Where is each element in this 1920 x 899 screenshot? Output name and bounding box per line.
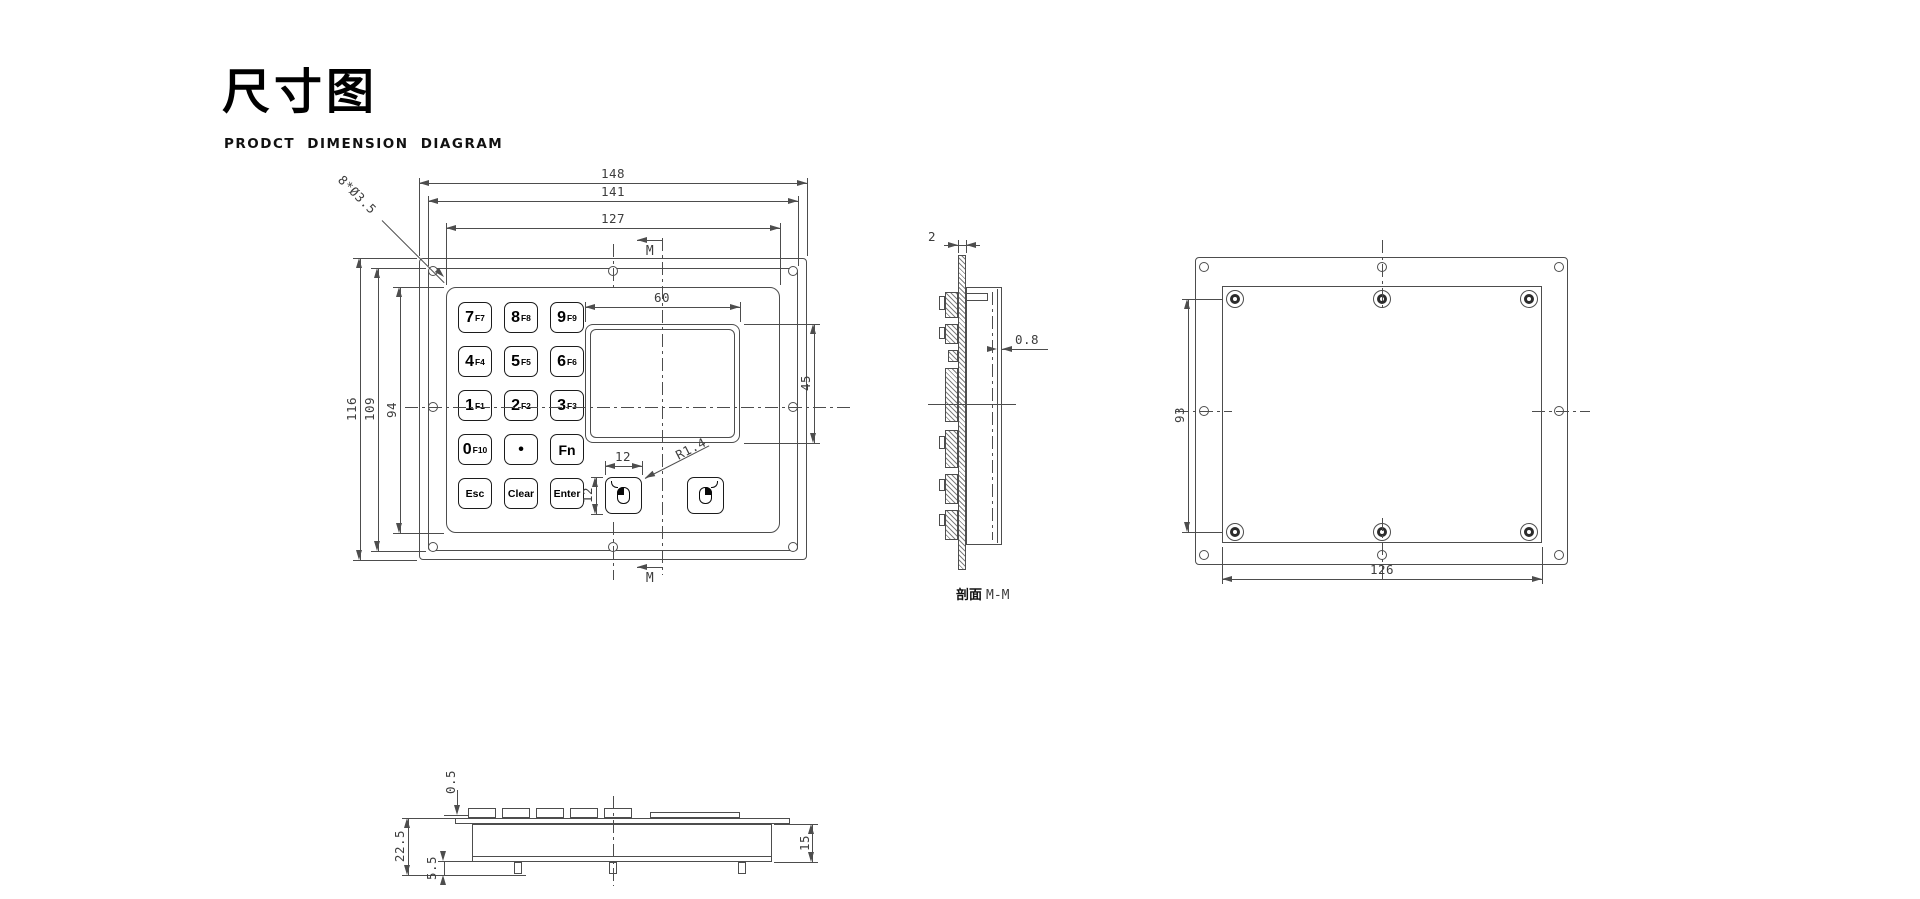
dim-line — [1188, 299, 1189, 532]
leader-line — [457, 790, 458, 806]
ext-line — [419, 178, 420, 256]
key-fn: Fn — [550, 434, 584, 465]
key-3-f3: 3F3 — [550, 390, 584, 421]
bottom-inner-line — [472, 856, 772, 857]
dim-label-overall-depth: 22.5 — [393, 824, 407, 868]
key-7-f7: 7F7 — [458, 302, 492, 333]
key-8-f8: 8F8 — [504, 302, 538, 333]
section-keycap — [939, 296, 945, 310]
centerline — [928, 404, 1016, 405]
ext-line — [393, 533, 444, 534]
key-4-f4: 4F4 — [458, 346, 492, 377]
dim-arrow — [356, 550, 362, 560]
dim-line — [585, 307, 740, 308]
dim-label-body-depth: 15 — [798, 823, 812, 863]
screw-boss — [514, 862, 522, 874]
dim-arrow — [797, 180, 807, 186]
dim-line — [814, 324, 815, 443]
dim-arrow — [356, 258, 362, 268]
centerline-top — [613, 244, 614, 292]
dim-label-touchpad-width: 60 — [642, 291, 682, 305]
section-component — [945, 324, 958, 344]
key-bump — [536, 808, 564, 818]
ext-line — [446, 223, 447, 285]
ext-line — [798, 196, 799, 266]
ext-line — [353, 560, 417, 561]
dim-arrow — [374, 268, 380, 278]
key-clear: Clear — [504, 478, 538, 509]
key-5-f5: 5F5 — [504, 346, 538, 377]
dim-label-mouse-key-height: 12 — [581, 475, 595, 515]
section-panel-plate — [958, 255, 966, 570]
mouse-left-button — [605, 477, 642, 514]
dim-arrow — [396, 287, 402, 297]
key-2-f2: 2F2 — [504, 390, 538, 421]
key-bump — [570, 808, 598, 818]
dim-line — [400, 287, 401, 533]
dim-label-inner-height: 94 — [385, 390, 399, 430]
centerline-horizontal — [405, 407, 853, 408]
dim-arrow — [730, 304, 740, 310]
dim-arrow — [454, 805, 460, 815]
dim-line — [360, 258, 361, 560]
dim-label-inner-width: 127 — [593, 212, 633, 226]
section-mark-arrow — [637, 237, 647, 243]
dim-label-mid-width: 141 — [593, 185, 633, 199]
key-bump — [604, 808, 632, 818]
section-hook-tab — [966, 293, 988, 301]
section-label-cn: 剖面 — [956, 584, 982, 603]
ext-line — [444, 815, 468, 816]
dim-line — [444, 861, 445, 875]
centerline — [1532, 411, 1590, 412]
section-component — [948, 350, 958, 362]
key-0-f10: 0F10 — [458, 434, 492, 465]
section-keycap — [939, 327, 945, 339]
dim-line — [378, 268, 379, 551]
section-component — [945, 474, 958, 504]
dim-label-panel-thickness: 2 — [922, 230, 942, 244]
dim-line — [446, 228, 780, 229]
dim-arrow — [788, 198, 798, 204]
dim-label-back-width: 126 — [1362, 563, 1402, 577]
ext-line — [958, 240, 959, 253]
dim-arrow — [810, 433, 816, 443]
dim-arrow — [440, 875, 446, 885]
dim-arrow — [770, 225, 780, 231]
section-cut-line — [662, 238, 663, 575]
dim-arrow — [396, 523, 402, 533]
leader-line — [382, 220, 445, 283]
section-wall-inner-line — [997, 289, 998, 543]
dim-arrow — [810, 324, 816, 334]
ext-line — [353, 258, 417, 259]
dim-arrow — [1532, 576, 1542, 582]
dim-arrow — [585, 304, 595, 310]
dim-label-wall-thickness: 0.8 — [1010, 333, 1044, 347]
dim-arrow — [446, 225, 456, 231]
section-component — [945, 292, 958, 318]
dim-label-mid-height: 109 — [363, 389, 377, 429]
ext-line — [807, 178, 808, 256]
dim-arrow — [1222, 576, 1232, 582]
key-dot: • — [504, 434, 538, 465]
key-bump — [468, 808, 496, 818]
dim-arrow — [1184, 522, 1190, 532]
section-keycap — [939, 479, 945, 491]
dim-arrow — [987, 346, 997, 352]
leader-line — [1002, 349, 1048, 350]
dim-line — [428, 201, 798, 202]
section-mark-top-label: M — [640, 245, 660, 259]
dimension-drawing-page: 尺寸图 PRODCT DIMENSION DIAGRAM 7F7 8F8 9F9… — [0, 0, 1920, 899]
section-view-label: 剖面 M-M — [956, 584, 1010, 603]
dim-line — [1222, 579, 1542, 580]
section-component — [945, 368, 958, 422]
standoff-boss — [1230, 527, 1240, 537]
mouse-right-icon — [699, 487, 712, 504]
dim-label-standoff-rows: 93 — [1173, 395, 1187, 435]
dim-arrow — [374, 541, 380, 551]
dim-arrow — [419, 180, 429, 186]
ext-line — [1542, 547, 1543, 584]
dim-arrow — [1184, 299, 1190, 309]
mounting-hole — [1199, 550, 1209, 560]
dim-arrow — [948, 242, 958, 248]
dim-label-mouse-key-width: 12 — [603, 450, 643, 464]
mounting-hole — [1199, 262, 1209, 272]
dim-label-overall-height: 116 — [345, 389, 359, 429]
page-title: 尺寸图 — [222, 52, 378, 122]
key-1-f1: 1F1 — [458, 390, 492, 421]
mounting-hole-bottom-right — [788, 542, 798, 552]
key-bump — [502, 808, 530, 818]
section-component — [945, 510, 958, 540]
key-6-f6: 6F6 — [550, 346, 584, 377]
key-9-f9: 9F9 — [550, 302, 584, 333]
section-keycap — [939, 514, 945, 526]
dim-arrow — [440, 851, 446, 861]
centerline-bottom — [613, 522, 614, 580]
mouse-left-icon — [617, 487, 630, 504]
dim-arrow — [966, 242, 976, 248]
ext-line — [402, 875, 526, 876]
section-label-en: M-M — [986, 588, 1009, 603]
ext-line — [740, 302, 741, 322]
ext-line — [371, 551, 426, 552]
standoff-boss — [1230, 294, 1240, 304]
key-esc: Esc — [458, 478, 492, 509]
section-mark-bottom-label: M — [640, 572, 660, 586]
section-mark-arrow — [637, 564, 647, 570]
ext-line — [428, 196, 429, 266]
dim-arrow — [428, 198, 438, 204]
screw-boss — [738, 862, 746, 874]
standoff-boss — [1524, 294, 1534, 304]
key-enter: Enter — [550, 478, 584, 509]
section-keycap — [939, 436, 945, 449]
mounting-hole — [1554, 550, 1564, 560]
hole-callout-label: 8*Ø3.5 — [329, 167, 386, 224]
centerline — [613, 796, 614, 886]
mouse-right-button — [687, 477, 724, 514]
dim-label-key-protrusion: 0.5 — [444, 762, 458, 802]
section-component — [945, 430, 958, 468]
dim-label-bottom-section: 5.5 — [425, 848, 439, 888]
mounting-hole — [1554, 262, 1564, 272]
section-wall-dash-line — [992, 292, 993, 540]
dim-label-overall-width: 148 — [593, 167, 633, 181]
ext-line — [1182, 532, 1222, 533]
ext-line — [780, 223, 781, 285]
ext-line — [744, 324, 820, 325]
mounting-hole-bottom-left — [428, 542, 438, 552]
centerline — [1382, 240, 1383, 312]
back-enclosure — [1222, 286, 1542, 543]
mounting-hole-top-right — [788, 266, 798, 276]
page-subtitle: PRODCT DIMENSION DIAGRAM — [224, 136, 503, 152]
dim-label-touchpad-height: 45 — [799, 363, 813, 403]
ext-line — [744, 443, 820, 444]
standoff-boss — [1524, 527, 1534, 537]
